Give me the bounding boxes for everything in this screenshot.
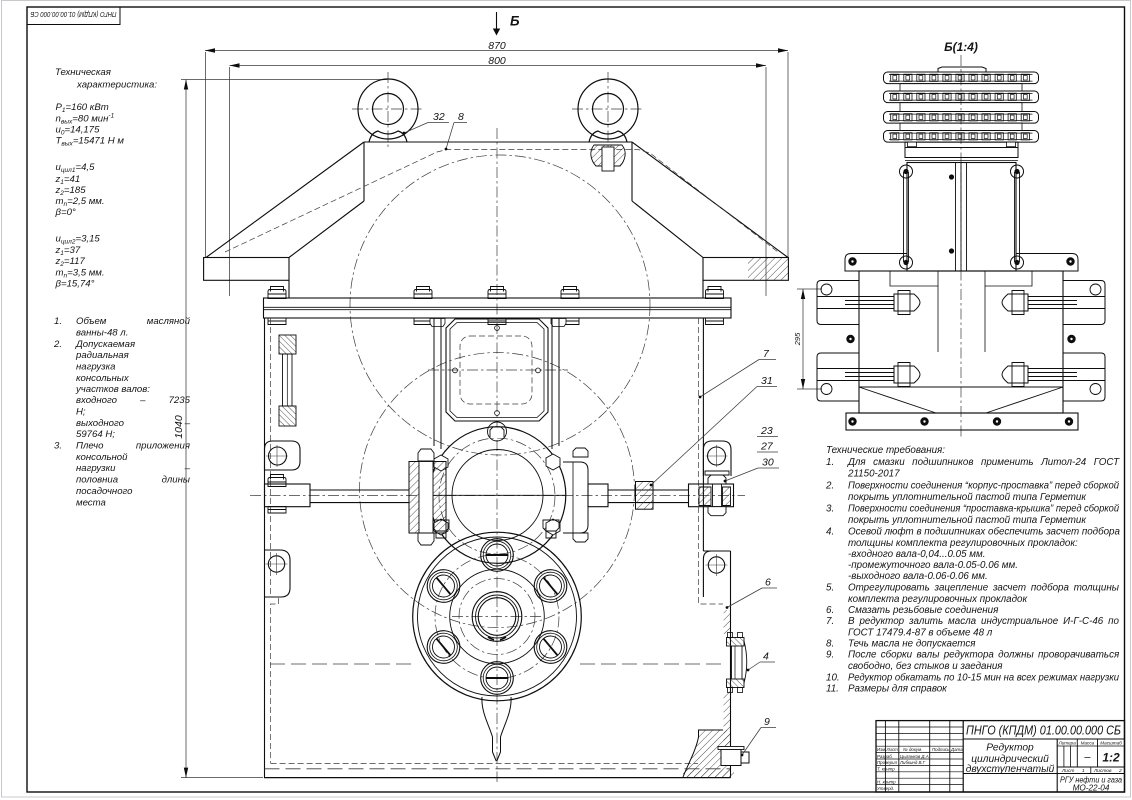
svg-text:870: 870 (488, 40, 506, 52)
svg-text:21150-2017: 21150-2017 (847, 469, 900, 480)
svg-text:консольных: консольных (76, 373, 130, 384)
svg-text:Либкинд В.Г: Либкинд В.Г (899, 760, 926, 765)
svg-text:места: места (76, 498, 106, 509)
svg-text:6.: 6. (826, 605, 834, 616)
svg-text:10.: 10. (826, 673, 840, 684)
svg-text:9: 9 (764, 716, 770, 728)
svg-text:9.: 9. (826, 650, 834, 661)
svg-text:1: 1 (1082, 768, 1085, 774)
svg-text:–: – (1083, 752, 1091, 764)
svg-text:Лист: Лист (1061, 768, 1074, 774)
svg-text:2.: 2. (825, 481, 834, 492)
svg-text:Технические требования:: Технические требования: (826, 445, 945, 456)
svg-text:участков валов:: участков валов: (75, 384, 150, 395)
svg-text:2: 2 (1118, 768, 1122, 774)
svg-text:Для смазки подшипников примени: Для смазки подшипников применить Литол-2… (847, 457, 1120, 468)
svg-text:3.: 3. (826, 504, 834, 515)
svg-text:1:2: 1:2 (1102, 751, 1120, 765)
svg-text:Н;: Н; (76, 407, 86, 418)
svg-text:2.: 2. (53, 339, 62, 350)
svg-text:295: 295 (793, 332, 802, 346)
svg-text:27: 27 (760, 441, 774, 453)
svg-text:30: 30 (762, 457, 774, 469)
svg-text:Разраб.: Разраб. (877, 754, 893, 759)
svg-text:4: 4 (763, 651, 769, 663)
svg-text:нагрузка: нагрузка (76, 362, 116, 373)
svg-text:-выходного вала-0.06-0.06 мм.: -выходного вала-0.06-0.06 мм. (848, 571, 988, 582)
svg-text:Дата: Дата (950, 747, 963, 752)
svg-text:Б(1:4): Б(1:4) (944, 40, 978, 54)
svg-text:Течь масла не допускается: Течь масла не допускается (848, 639, 976, 650)
svg-text:Б: Б (510, 14, 520, 29)
svg-text:32: 32 (433, 111, 445, 123)
svg-text:31: 31 (761, 375, 773, 387)
svg-text:ванны-48 л.: ванны-48 л. (76, 328, 128, 339)
svg-text:характеристика:: характеристика: (76, 80, 157, 91)
svg-text:23: 23 (760, 425, 773, 437)
svg-text:1.: 1. (826, 457, 834, 468)
svg-text:половниа длины: половниа длины (76, 475, 190, 486)
svg-text:8.: 8. (826, 639, 834, 650)
svg-text:двухступенчатый: двухступенчатый (966, 764, 1055, 775)
svg-text:Отрегулировать зацепление засч: Отрегулировать зацепление засчет подбора… (848, 583, 1120, 594)
svg-text:входного – 7235: входного – 7235 (76, 395, 191, 406)
svg-text:ПНГО (КПДМ) 01.00.00.000 СБ: ПНГО (КПДМ) 01.00.00.000 СБ (966, 723, 1121, 738)
svg-text:11.: 11. (826, 684, 839, 695)
svg-text:β=15,74°: β=15,74° (55, 279, 95, 290)
svg-text:Плечо приложения: Плечо приложения (76, 441, 190, 452)
svg-text:z2=117: z2=117 (55, 256, 86, 268)
svg-text:59764 Н;: 59764 Н; (76, 429, 115, 440)
svg-text:6: 6 (765, 577, 771, 589)
svg-text:Цыганков Д.А: Цыганков Д.А (900, 754, 929, 759)
svg-text:комплекта регулировочных прокл: комплекта регулировочных прокладок (848, 594, 1027, 605)
svg-text:Подпись: Подпись (932, 747, 950, 752)
svg-text:-входного вала-0,04...0.05 мм.: -входного вала-0,04...0.05 мм. (848, 549, 985, 560)
svg-text:1040: 1040 (173, 415, 185, 439)
svg-text:Поверхности соединения “проста: Поверхности соединения “проставка-крышка… (848, 504, 1120, 515)
svg-text:-промежуточного вала-0.05-0.06: -промежуточного вала-0.05-0.06 мм. (848, 560, 1018, 571)
svg-text:Техническая: Техническая (55, 67, 111, 78)
svg-text:покрыть уплотнительной пастой: покрыть уплотнительной пастой типа Герме… (848, 492, 1086, 503)
svg-text:радиальная: радиальная (75, 350, 129, 361)
svg-text:Размеры для справок: Размеры для справок (848, 684, 947, 695)
svg-text:Осевой люфт в подшипниках обес: Осевой люфт в подшипниках обеспечить зас… (848, 527, 1121, 538)
svg-text:β=0°: β=0° (55, 207, 76, 218)
svg-text:Н. контр: Н. контр (877, 779, 896, 784)
svg-text:посадочного: посадочного (76, 486, 133, 497)
svg-text:ГОСТ 17479.4-87 в объеме 48 л: ГОСТ 17479.4-87 в объеме 48 л (848, 628, 993, 639)
svg-text:свободно, без стыков и заедани: свободно, без стыков и заедания (848, 661, 1003, 672)
svg-text:4.: 4. (826, 527, 834, 538)
svg-text:Листов: Листов (1093, 768, 1112, 774)
svg-text:Лист: Лист (886, 747, 899, 752)
svg-text:Поверхности соединения “корпус: Поверхности соединения “корпус-проставка… (848, 481, 1120, 492)
svg-text:№ докум.: № докум. (903, 747, 922, 752)
svg-text:Масса: Масса (1081, 740, 1095, 745)
svg-text:Масштаб: Масштаб (1100, 740, 1122, 745)
svg-text:5.: 5. (826, 583, 834, 594)
svg-text:Редуктор обкатать по 10-15 мин: Редуктор обкатать по 10-15 мин на всех р… (848, 673, 1120, 684)
svg-text:Объем масляной: Объем масляной (76, 316, 191, 327)
svg-text:Изм.: Изм. (877, 747, 886, 752)
svg-text:Смазать резьбовые соединения: Смазать резьбовые соединения (848, 605, 999, 616)
svg-text:МО-22-04: МО-22-04 (1073, 784, 1110, 793)
svg-text:В редуктор залить масла индуст: В редуктор залить масла индустриальное И… (848, 616, 1120, 627)
svg-text:Допускаемая: Допускаемая (75, 339, 135, 350)
svg-text:нагрузки –: нагрузки – (76, 463, 191, 474)
svg-text:Проверил: Проверил (877, 760, 898, 765)
svg-text:800: 800 (488, 55, 506, 67)
svg-text:Редуктор: Редуктор (986, 743, 1034, 754)
svg-text:Утверд.: Утверд. (877, 786, 894, 791)
svg-text:Литера: Литера (1058, 740, 1077, 745)
svg-text:1.: 1. (54, 316, 62, 327)
svg-text:ПНГО (КПДМ) 01.00.00.000 СБ: ПНГО (КПДМ) 01.00.00.000 СБ (30, 10, 116, 19)
svg-text:8: 8 (458, 111, 464, 123)
svg-text:3.: 3. (54, 441, 62, 452)
svg-text:консольной: консольной (76, 452, 128, 463)
svg-text:покрыть уплотнительной пастой: покрыть уплотнительной пастой типа Герме… (848, 515, 1086, 526)
svg-text:После сборки валы редуктора до: После сборки валы редуктора должны прово… (848, 650, 1120, 661)
svg-text:Т. контр: Т. контр (877, 767, 895, 772)
svg-text:толщины комплекта регулировочн: толщины комплекта регулировочных проклад… (848, 538, 1078, 549)
svg-text:7.: 7. (826, 616, 834, 627)
